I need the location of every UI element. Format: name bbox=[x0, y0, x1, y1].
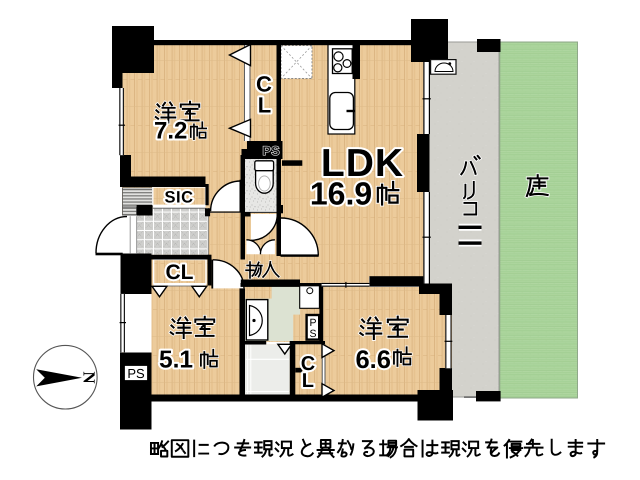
svg-text:6.6: 6.6 bbox=[356, 346, 391, 374]
svg-text:S: S bbox=[309, 328, 316, 340]
svg-text:7.2: 7.2 bbox=[154, 118, 187, 145]
svg-text:CL: CL bbox=[166, 261, 194, 284]
svg-text:PS: PS bbox=[127, 366, 145, 381]
svg-text:16.9: 16.9 bbox=[310, 176, 372, 212]
svg-text:SIC: SIC bbox=[164, 189, 193, 207]
svg-text:5.1: 5.1 bbox=[159, 347, 193, 374]
svg-text:L: L bbox=[258, 93, 271, 118]
svg-text:L: L bbox=[302, 370, 314, 392]
svg-text:PS: PS bbox=[262, 144, 280, 158]
svg-text:N: N bbox=[80, 371, 99, 384]
